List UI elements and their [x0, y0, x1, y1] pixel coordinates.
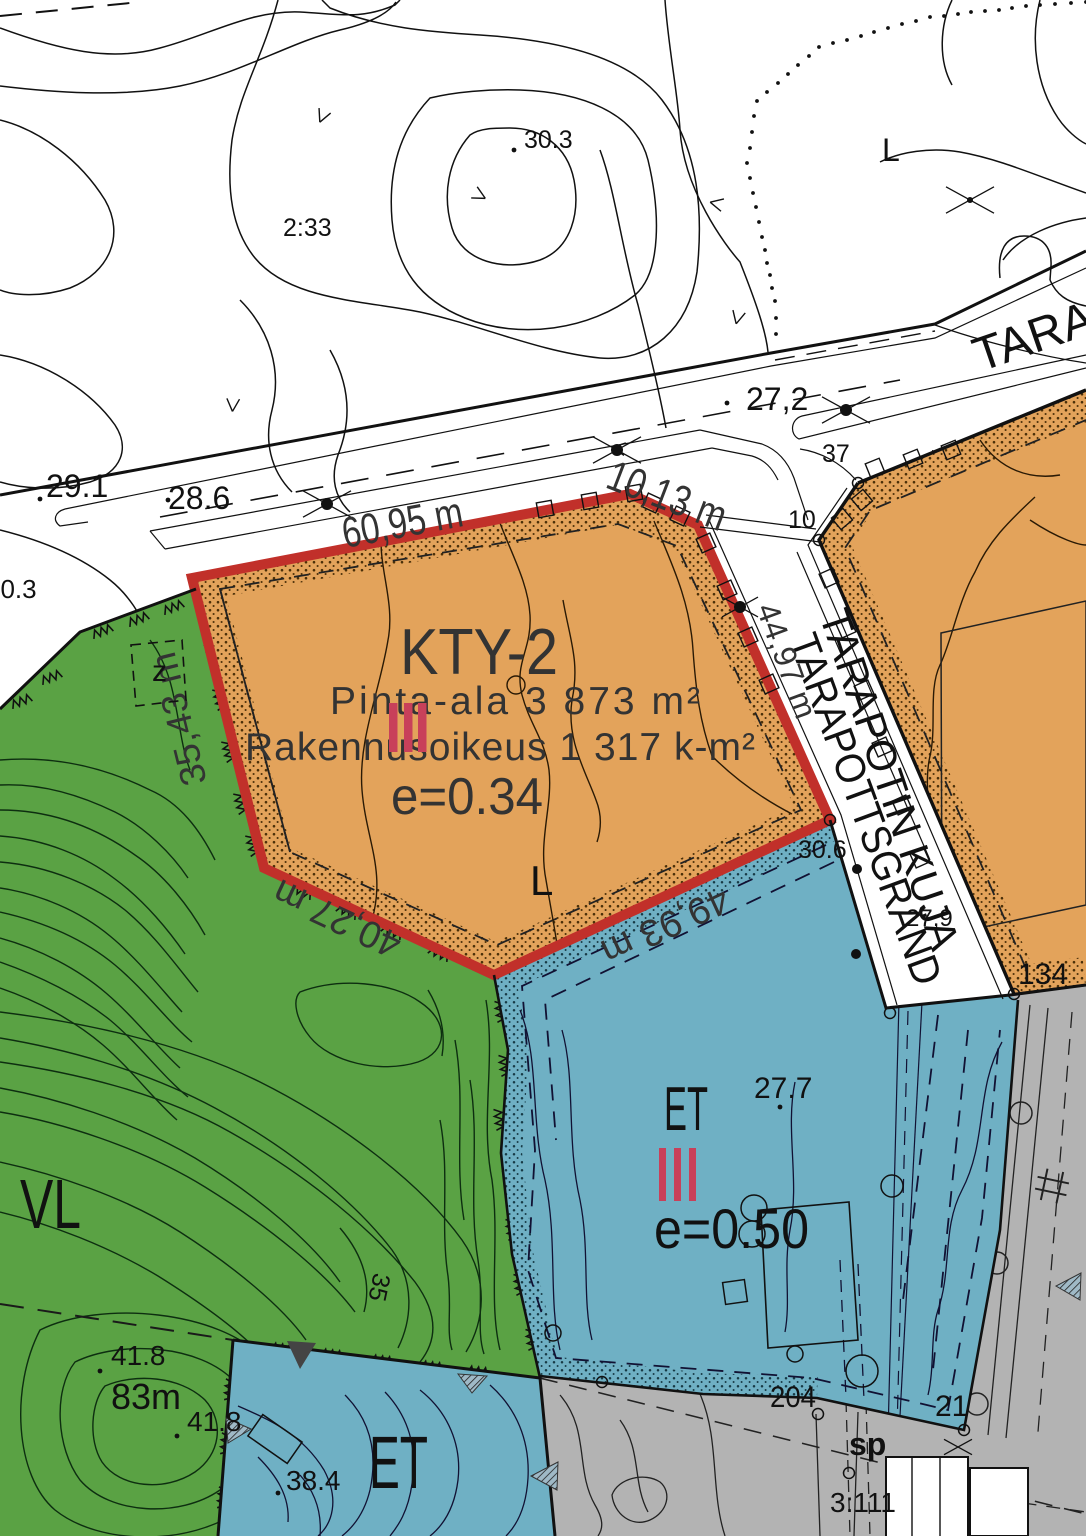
svg-text:41.8: 41.8 — [111, 1340, 166, 1371]
svg-text:ET: ET — [664, 1075, 708, 1144]
svg-text:VL: VL — [20, 1165, 81, 1243]
svg-text:e=0.50: e=0.50 — [654, 1197, 809, 1260]
svg-text:L: L — [530, 857, 553, 904]
svg-text:10: 10 — [788, 506, 816, 534]
svg-text:ET: ET — [369, 1421, 428, 1504]
svg-text:27,9: 27,9 — [906, 905, 953, 932]
svg-text:35: 35 — [362, 1271, 395, 1304]
svg-text:134: 134 — [1018, 958, 1068, 991]
svg-text:30.6: 30.6 — [798, 836, 847, 864]
svg-text:38.4: 38.4 — [286, 1465, 341, 1496]
svg-text:27,2: 27,2 — [746, 381, 808, 417]
svg-text:z: z — [152, 655, 167, 688]
svg-text:KTY-2: KTY-2 — [400, 615, 558, 688]
svg-text:27.7: 27.7 — [754, 1072, 812, 1105]
svg-text:37: 37 — [822, 440, 850, 468]
svg-text:L: L — [882, 132, 900, 168]
svg-text:83m: 83m — [111, 1376, 181, 1417]
svg-text:2:33: 2:33 — [283, 214, 332, 242]
svg-text:3:111: 3:111 — [830, 1487, 896, 1518]
svg-text:Rakennusoikeus 1 317 k-m²: Rakennusoikeus 1 317 k-m² — [245, 726, 755, 769]
svg-text:sp: sp — [849, 1426, 886, 1462]
svg-text:204: 204 — [770, 1381, 816, 1414]
svg-text:28.6: 28.6 — [168, 480, 230, 516]
svg-text:21: 21 — [935, 1390, 968, 1423]
svg-text:e=0.34: e=0.34 — [391, 768, 543, 826]
svg-text:29.1: 29.1 — [46, 468, 108, 504]
svg-text:30.3: 30.3 — [524, 126, 573, 154]
svg-text:30.3: 30.3 — [0, 574, 37, 604]
svg-text:41.8: 41.8 — [187, 1406, 242, 1437]
svg-text:Pinta-ala 3 873 m²: Pinta-ala 3 873 m² — [330, 680, 700, 723]
